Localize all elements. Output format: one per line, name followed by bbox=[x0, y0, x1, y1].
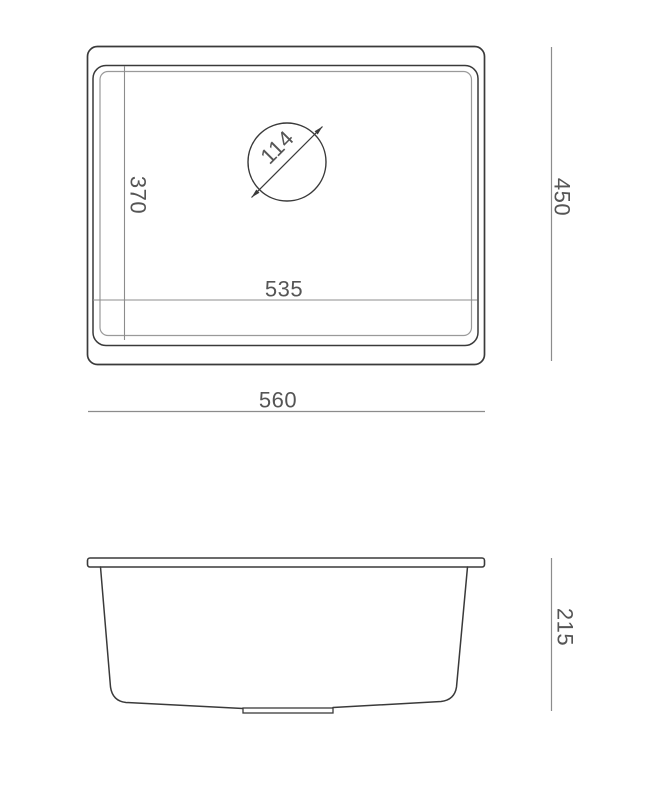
overall-width-label: 560 bbox=[259, 388, 297, 413]
bowl-width-label: 370 bbox=[125, 176, 150, 214]
side-view-flange bbox=[88, 558, 485, 567]
overall-depth-label: 450 bbox=[549, 178, 574, 216]
sink-side-view: 215 bbox=[88, 558, 578, 713]
bowl-depth-label: 215 bbox=[552, 608, 577, 646]
side-view-bowl-left-wall bbox=[101, 567, 244, 709]
sink-top-view: 114 370 535 bbox=[88, 47, 485, 365]
top-view-dimensions: 450 560 bbox=[88, 47, 574, 413]
sink-dimension-drawing: 114 370 535 450 560 215 bbox=[0, 0, 646, 800]
side-view-bowl-right-wall bbox=[333, 567, 468, 708]
bowl-length-label: 535 bbox=[265, 277, 303, 302]
side-view-drain-fitting bbox=[243, 708, 333, 713]
